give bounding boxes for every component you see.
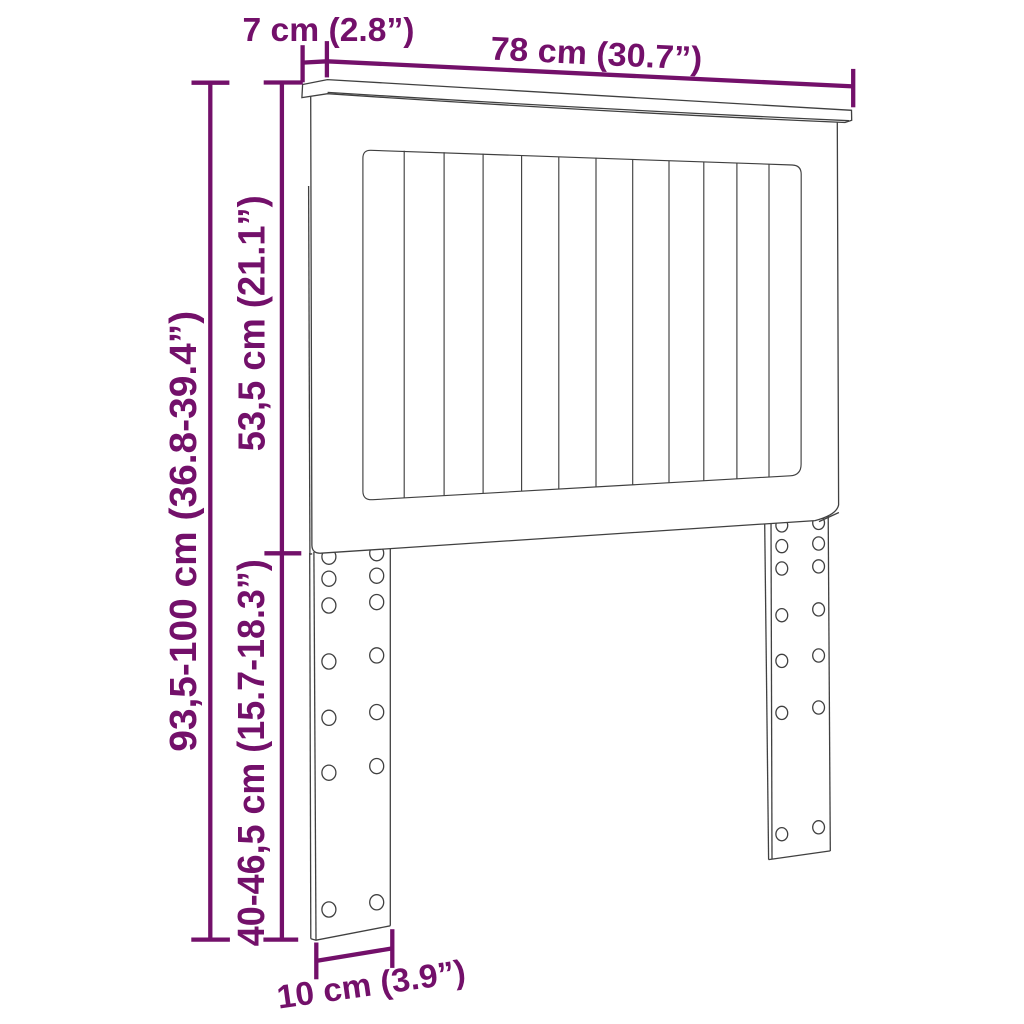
svg-text:40-46,5 cm (15.7-18.3”): 40-46,5 cm (15.7-18.3”) <box>231 559 273 946</box>
svg-text:7 cm (2.8”): 7 cm (2.8”) <box>243 11 415 48</box>
svg-text:53,5 cm (21.1”): 53,5 cm (21.1”) <box>231 195 273 451</box>
svg-text:93,5-100 cm (36.8-39.4”): 93,5-100 cm (36.8-39.4”) <box>163 311 205 752</box>
